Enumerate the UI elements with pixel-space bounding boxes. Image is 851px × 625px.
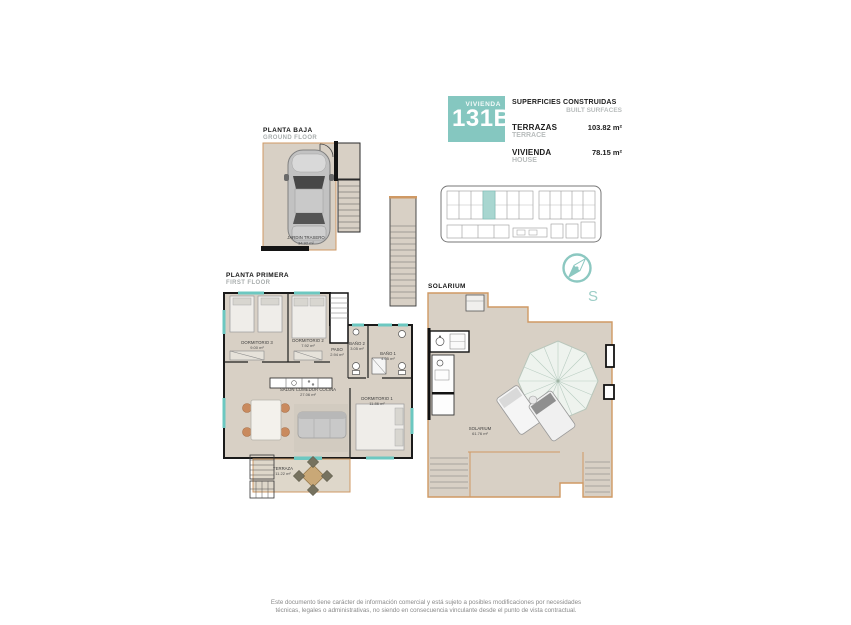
room-area: 9.00 m² (250, 345, 264, 350)
surface-row-vivienda: VIVIENDA 78.15 m² HOUSE (512, 148, 622, 164)
room-area: 27.06 m² (300, 392, 316, 397)
room-area: 11.86 m² (369, 401, 385, 406)
car-top-view (284, 150, 334, 244)
surface-label: TERRAZAS (512, 123, 557, 132)
surface-label-en: HOUSE (512, 157, 622, 164)
surface-value: 78.15 m² (592, 148, 622, 157)
unit-number: 131B (448, 108, 505, 130)
stair-landing (336, 143, 360, 179)
legal-disclaimer: Este documento tiene carácter de informa… (268, 599, 584, 615)
room-area: 7.92 m² (301, 343, 315, 348)
wall (261, 246, 309, 251)
bed-double (356, 404, 404, 450)
sofa (298, 412, 346, 438)
site-key-plan (437, 183, 607, 247)
unit-badge: VIVIENDA 131B (448, 96, 505, 142)
compass-needle (566, 256, 589, 280)
first-floor-plan: DORMITORIO 3 9.00 m² DORMITORIO 2 7.92 m… (218, 283, 433, 503)
surface-label: VIVIENDA (512, 148, 551, 157)
surface-row-terrazas: TERRAZAS 103.82 m² TERRACE (512, 123, 622, 139)
room-area: 11.22 m² (275, 471, 291, 476)
room-area: 2.94 m² (330, 352, 344, 357)
surfaces-title: SUPERFICIES CONSTRUIDAS (512, 99, 622, 106)
ground-floor-label-es: PLANTA BAJA (263, 127, 317, 134)
surfaces-panel: SUPERFICIES CONSTRUIDAS BUILT SURFACES T… (512, 99, 622, 164)
room-area: 3.05 m² (350, 346, 364, 351)
solarium-plan: SOLARIUM 61.76 m² (425, 283, 630, 505)
room-label-jardin: JARDIN TRASERO (287, 235, 325, 240)
bed-double (292, 296, 326, 338)
room-area: 4.05 m² (381, 356, 395, 361)
highlighted-unit (483, 191, 495, 219)
garage-stairs (338, 180, 360, 232)
surface-label-en: TERRACE (512, 132, 622, 139)
surface-value: 103.82 m² (588, 123, 622, 132)
outdoor-shower (432, 355, 454, 415)
floorplan-sheet: VIVIENDA 131B SUPERFICIES CONSTRUIDAS BU… (0, 0, 851, 625)
room-area-solarium: 61.76 m² (472, 431, 488, 436)
outdoor-kitchen (430, 331, 469, 352)
wall (334, 141, 338, 181)
utility-box (466, 295, 484, 311)
surfaces-subtitle: BUILT SURFACES (512, 107, 622, 114)
site-boundary (441, 186, 601, 242)
interior-stair-void (330, 293, 348, 343)
room-area-jardin: 34.92 m² (298, 241, 314, 246)
